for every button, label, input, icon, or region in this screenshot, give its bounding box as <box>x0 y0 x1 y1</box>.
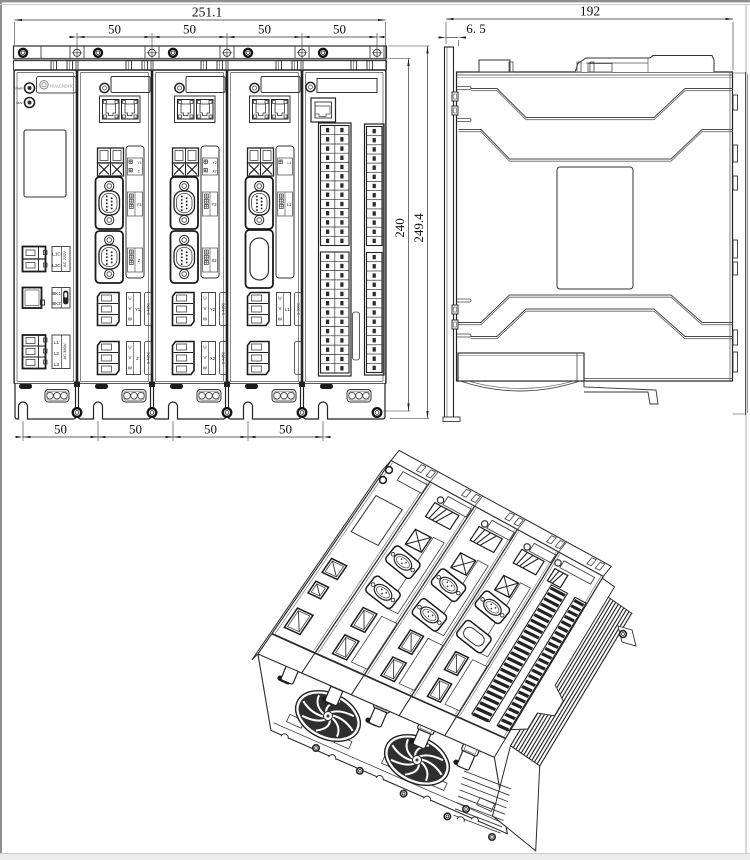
svg-text:BK1: BK1 <box>52 291 61 296</box>
svg-text:S-485C: S-485C <box>222 352 226 365</box>
svg-text:X2: X2 <box>210 356 216 361</box>
svg-text:Z: Z <box>138 258 141 263</box>
svg-text:6. 5: 6. 5 <box>466 21 486 36</box>
svg-text:50: 50 <box>333 22 346 37</box>
svg-text:S-485C: S-485C <box>147 303 151 316</box>
svg-text:U: U <box>128 345 131 350</box>
svg-text:Y2: Y2 <box>213 161 217 165</box>
svg-text:L2: L2 <box>54 351 60 356</box>
svg-text:50: 50 <box>279 422 292 437</box>
svg-text:50: 50 <box>54 422 67 437</box>
svg-text:Z: Z <box>136 356 139 361</box>
svg-text:V: V <box>279 306 282 311</box>
svg-text:L3: L3 <box>54 362 60 367</box>
svg-text:192: 192 <box>580 4 600 19</box>
svg-text:V: V <box>129 355 132 360</box>
svg-text:251.1: 251.1 <box>192 5 222 20</box>
svg-text:L1: L1 <box>287 202 292 207</box>
svg-text:Y1: Y1 <box>136 202 142 207</box>
svg-text:BK2: BK2 <box>52 301 61 306</box>
svg-text:U: U <box>278 296 281 301</box>
svg-text:AC 380V: AC 380V <box>62 343 67 359</box>
svg-text:L1: L1 <box>285 307 290 312</box>
svg-text:X2: X2 <box>211 258 217 263</box>
svg-text:AC 220V: AC 220V <box>62 251 67 267</box>
svg-text:X2: X2 <box>213 170 217 174</box>
svg-text:S-300C: S-300C <box>297 303 301 316</box>
svg-text:50: 50 <box>183 22 196 37</box>
svg-text:PWR: PWR <box>16 87 24 91</box>
svg-text:S-485C: S-485C <box>222 303 226 316</box>
svg-text:50: 50 <box>204 422 217 437</box>
svg-text:Z: Z <box>138 170 140 174</box>
svg-text:L1: L1 <box>54 340 60 345</box>
svg-text:U: U <box>203 296 206 301</box>
svg-text:V: V <box>204 355 207 360</box>
svg-text:V: V <box>204 306 207 311</box>
svg-text:V: V <box>129 306 132 311</box>
svg-text:DRV: DRV <box>16 101 22 105</box>
svg-text:L2C: L2C <box>52 263 61 268</box>
svg-text:50: 50 <box>129 422 142 437</box>
svg-text:249.4: 249.4 <box>411 213 426 243</box>
svg-text:HUACNBHG: HUACNBHG <box>50 83 75 88</box>
svg-text:U: U <box>203 345 206 350</box>
svg-text:Y2: Y2 <box>210 307 216 312</box>
svg-text:Y1: Y1 <box>135 307 141 312</box>
svg-text:S-485C: S-485C <box>147 352 151 365</box>
svg-text:U: U <box>128 296 131 301</box>
svg-text:240: 240 <box>392 218 407 238</box>
svg-text:Y1: Y1 <box>138 161 142 165</box>
svg-text:50: 50 <box>258 22 271 37</box>
svg-text:50: 50 <box>108 22 121 37</box>
svg-text:L1: L1 <box>288 161 292 165</box>
svg-text:L1C: L1C <box>52 252 61 257</box>
svg-text:Y2: Y2 <box>211 202 217 207</box>
